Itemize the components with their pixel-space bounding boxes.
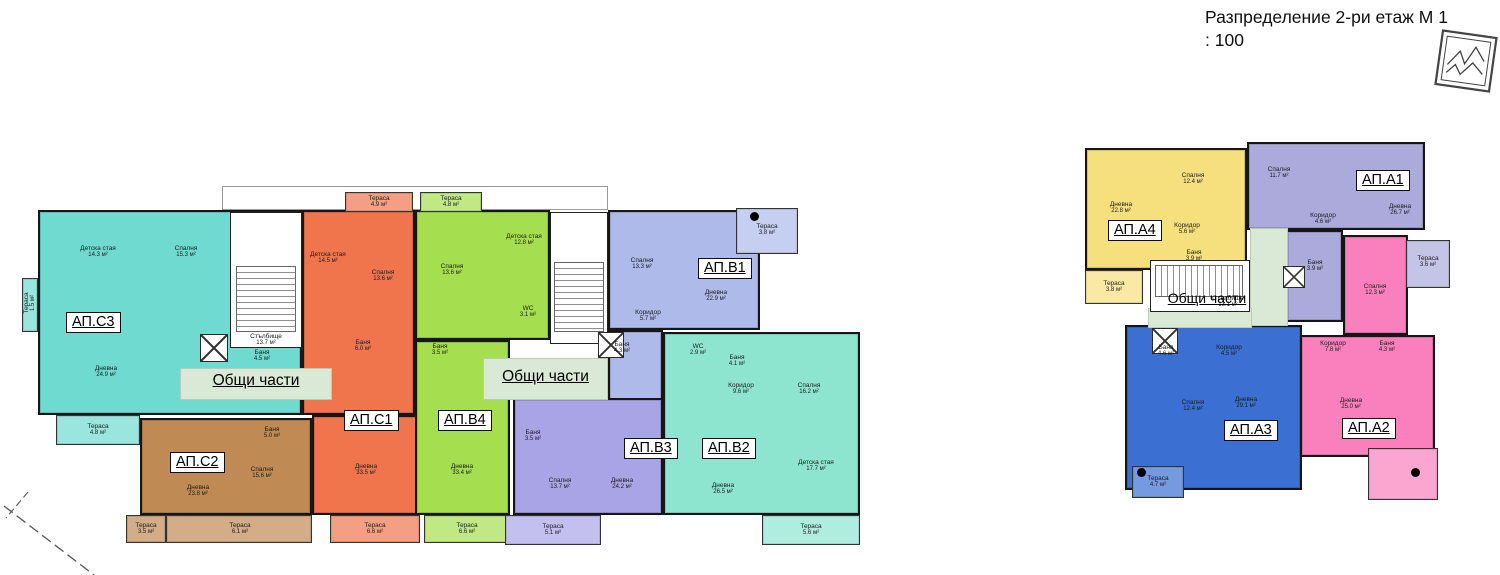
floor-plan: Разпределение 2-ри етаж М 1 : 100 Общи ч… — [0, 0, 1500, 575]
room-label: Спалня12.3 м² — [1364, 283, 1387, 297]
room-label: Баня4.5 м² — [254, 349, 270, 363]
room-label: Спалня11.7 м² — [1268, 166, 1291, 180]
room-label: Тераса5.1 м² — [542, 523, 563, 537]
common-areas-label: Общи части — [1152, 290, 1262, 306]
room-label: Тераса3.5 м² — [135, 522, 156, 536]
apartment-b4-region — [415, 210, 550, 340]
room-label: Баня3.5 м² — [432, 343, 448, 357]
room-label: Спалня12.4 м² — [1182, 399, 1205, 413]
room-label: Баня3.5 м² — [525, 429, 541, 443]
room-label: Тераса4.9 м² — [368, 195, 389, 209]
stairs — [236, 266, 296, 332]
room-label: Коридор4.6 м² — [1310, 212, 1336, 226]
room-label: Тераса3.8 м² — [1103, 280, 1124, 294]
column-dot — [1137, 468, 1146, 477]
logo-icon — [1432, 24, 1500, 98]
room-label: Баня5.0 м² — [264, 426, 280, 440]
room-label: Тераса5.6 м² — [800, 523, 821, 537]
room-label: Тераса1.5 м² — [23, 292, 37, 313]
apartment-label-b2: АП.В2 — [702, 438, 756, 459]
room-label: Баня6.0 м² — [355, 339, 371, 353]
room-label: Коридор7.8 м² — [1320, 340, 1346, 354]
room-label: Дневна22.8 м² — [1110, 201, 1132, 215]
apartment-label-b4: АП.В4 — [438, 410, 492, 431]
drawing-title: Разпределение 2-ри етаж М 1 : 100 — [1205, 6, 1457, 52]
room-label: WC3.1 м² — [520, 305, 536, 319]
room-label: Дневна26.7 м² — [1389, 203, 1411, 217]
room-label: Тераса3.6 м² — [1417, 255, 1438, 269]
room-label: Баня4.6 м² — [1158, 344, 1174, 358]
common-areas-label: Общи части — [182, 372, 330, 390]
room-label: Баня3.9 м² — [1186, 249, 1202, 263]
room-label: Спалня15.3 м² — [175, 245, 198, 259]
apartment-label-a1: АП.А1 — [1356, 170, 1410, 191]
room-label: Коридор4.5 м² — [1216, 344, 1242, 358]
room-label: Дневна33.5 м² — [355, 463, 377, 477]
room-label: Спалня16.2 м² — [798, 382, 821, 396]
room-label: Спалня13.6 м² — [441, 263, 464, 277]
apartment-b2-region — [663, 332, 860, 515]
room-label: Спалня15.6 м² — [251, 466, 274, 480]
room-label: Тераса3.8 м² — [756, 223, 777, 237]
apartment-label-b3: АП.В3 — [624, 438, 678, 459]
apartment-label-a3: АП.А3 — [1224, 420, 1278, 441]
stairwell-label: Стълбище 13.7 м² — [250, 333, 282, 347]
room-label: Дневна24.9 м² — [95, 365, 117, 379]
apartment-label-c3: АП.С3 — [66, 312, 121, 333]
room-label: Детска стая14.5 м² — [310, 251, 346, 265]
apartment-label-a4: АП.А4 — [1108, 220, 1162, 241]
room-label: Баня4.3 м² — [614, 341, 630, 355]
room-label: Спалня12.4 м² — [1182, 172, 1205, 186]
column-dot — [750, 212, 759, 221]
room-label: Детска стая14.3 м² — [80, 245, 116, 259]
room-label: Баня4.3 м² — [1379, 340, 1395, 354]
apartment-label-a2: АП.А2 — [1342, 418, 1396, 439]
room-label: Тераса6.1 м² — [229, 522, 250, 536]
room-label: Баня3.9 м² — [1307, 259, 1323, 273]
apartment-a2-terrace — [1368, 448, 1438, 500]
room-label: Тераса4.8 м² — [440, 195, 461, 209]
room-label: Тераса6.6 м² — [456, 522, 477, 536]
room-label: Коридор9.6 м² — [728, 382, 754, 396]
room-label: Дневна33.4 м² — [451, 463, 473, 477]
room-label: Тераса6.6 м² — [364, 522, 385, 536]
room-label: Тераса4.8 м² — [87, 423, 108, 437]
room-label: Тераса4.7 м² — [1147, 475, 1168, 489]
column-dot — [1411, 468, 1420, 477]
common-areas-label: Общи части — [483, 368, 608, 386]
room-label: Дневна22.9 м² — [705, 289, 727, 303]
parapet-outline — [222, 186, 608, 210]
room-label: Баня4.1 м² — [729, 354, 745, 368]
elevator-icon — [1283, 266, 1305, 288]
room-label: Дневна24.2 м² — [611, 477, 633, 491]
apartment-label-c1: АП.С1 — [344, 410, 399, 431]
apartment-c2-region — [140, 418, 312, 515]
room-label: WC2.9 м² — [690, 343, 706, 357]
room-label: Спалня13.3 м² — [631, 257, 654, 271]
room-label: Спалня13.6 м² — [372, 269, 395, 283]
room-label: Коридор5.6 м² — [1174, 222, 1200, 236]
apartment-label-b1: АП.В1 — [698, 258, 752, 279]
room-label: Детска стая17.7 м² — [798, 459, 834, 473]
room-label: Спалня13.7 м² — [549, 477, 572, 491]
room-label: Детска стая12.8 м² — [506, 233, 542, 247]
elevator-icon — [200, 334, 228, 362]
room-label: Дневна26.5 м² — [712, 482, 734, 496]
room-label: Дневна23.8 м² — [187, 484, 209, 498]
apartment-label-c2: АП.С2 — [170, 452, 225, 473]
room-label: Дневна29.1 м² — [1235, 396, 1257, 410]
stairs — [554, 262, 604, 332]
room-label: Коридор5.7 м² — [635, 309, 661, 323]
room-label: Дневна25.0 м² — [1340, 397, 1362, 411]
